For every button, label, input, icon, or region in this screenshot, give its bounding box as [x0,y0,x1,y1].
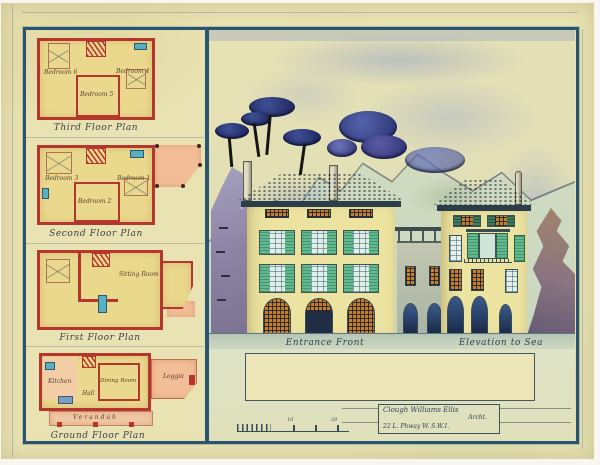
border-frame [23,27,579,444]
pencil-line [582,29,583,449]
pencil-line [12,5,13,457]
pencil-line [22,12,578,13]
panel-divider [205,27,209,444]
drawing-sheet: Bedroom 6 Bedroom 4 Bedroom 5 Third Floo… [1,3,594,459]
